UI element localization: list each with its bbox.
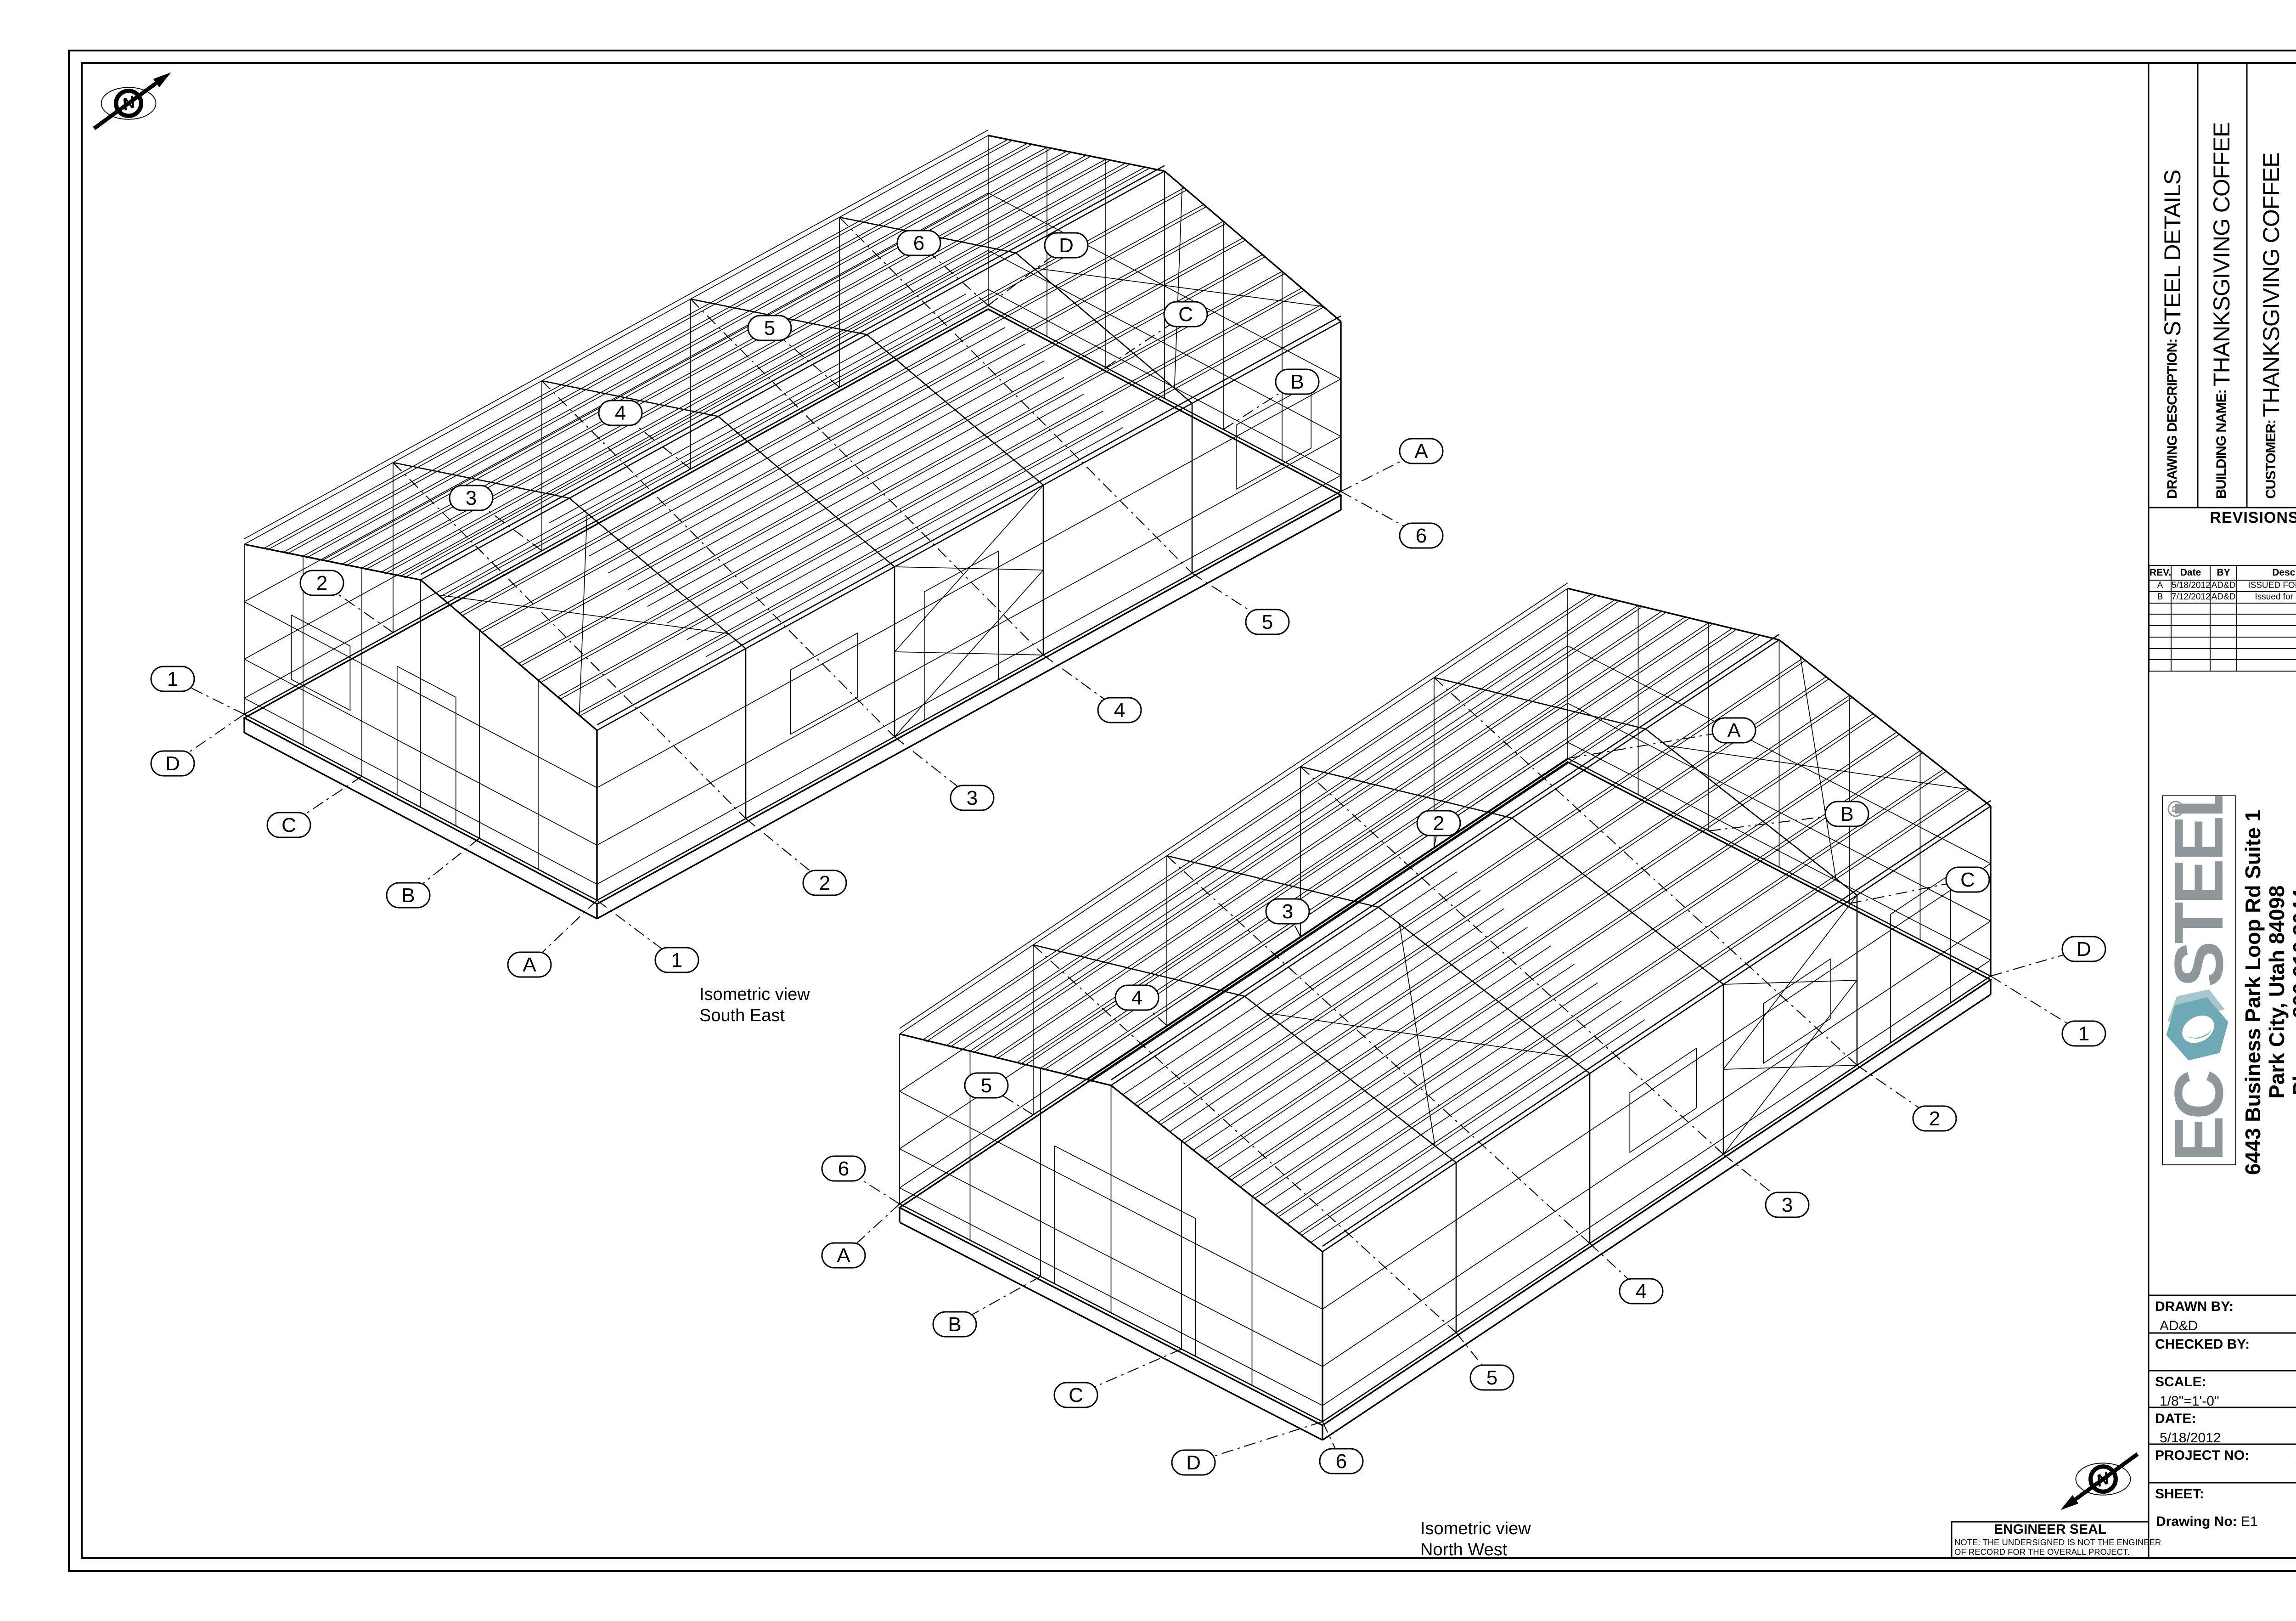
revisions-cell (2149, 660, 2171, 671)
info-value (2155, 1352, 2296, 1356)
grid-bubble-label: A (1727, 719, 1741, 742)
grid-bubble-label: 5 (1262, 611, 1273, 633)
revisions-cell (2237, 637, 2296, 649)
inner-border (82, 63, 2296, 1558)
revisions-cell (2237, 603, 2296, 615)
grid-bubble-label: 4 (615, 402, 626, 424)
grid-bubble-label: 2 (819, 872, 830, 894)
grid-bubble-label: B (1290, 371, 1304, 393)
grid-bubble-label: 2 (1433, 812, 1444, 835)
revisions-col-header: Date (2171, 565, 2210, 580)
field-label: BUILDING NAME: (2214, 390, 2229, 499)
drawing-no-label: Drawing No: (2156, 1514, 2237, 1529)
grid-bubble-label: 3 (1782, 1194, 1793, 1216)
engineer-seal-title: ENGINEER SEAL (1952, 1522, 2149, 1537)
address-line: 6443 Business Park Loop Rd Suite 1 (2241, 661, 2265, 1323)
info-value: AD&D (2155, 1315, 2296, 1334)
project-no-value: 1051-12 (2290, 1447, 2296, 1469)
grid-bubble-label: B (948, 1313, 961, 1336)
info-label: DATE: (2155, 1411, 2296, 1427)
info-value: 1/8"=1'-0" (2155, 1390, 2296, 1409)
title-field-0: DRAWING DESCRIPTION:STEEL DETAILS (2149, 64, 2198, 506)
field-label: CUSTOMER: (2263, 420, 2279, 499)
revisions-cell: 7/12/2012 (2171, 592, 2210, 603)
grid-bubble-label: 6 (838, 1158, 849, 1180)
view-title-south-east: Isometric view South East (699, 984, 810, 1026)
grid-bubble-label: A (1414, 440, 1428, 463)
north-arrow-icon: N (94, 72, 171, 128)
revisions-cell (2171, 660, 2210, 671)
revisions-cell (2149, 649, 2171, 660)
revisions-cell: AD&D (2210, 580, 2237, 592)
revisions-cell (2210, 637, 2237, 649)
revisions-cell (2149, 614, 2171, 626)
info-label: SCALE: (2155, 1374, 2296, 1390)
grid-bubble-label: 3 (466, 487, 477, 509)
building-north-west (900, 583, 1991, 1440)
revisions-col-header: REV. (2149, 565, 2171, 580)
revisions-cell: A (2149, 580, 2171, 592)
revisions-cell (2149, 637, 2171, 649)
revisions-cell (2171, 626, 2210, 637)
field-value: STEEL DETAILS (2160, 170, 2185, 339)
company-address: 6443 Business Park Loop Rd Suite 1 Park … (2241, 661, 2296, 1323)
revisions-cell (2210, 626, 2237, 637)
ecosteel-logo: EC STEEL R (2163, 796, 2235, 1164)
revisions-cell (2237, 626, 2296, 637)
address-line: Phone: 800.916.2044 (2289, 661, 2296, 1323)
grid-bubble-label: 3 (1282, 900, 1293, 923)
grid-bubble-label: 2 (316, 572, 327, 594)
grid-bubble-label: D (1186, 1452, 1201, 1474)
sheet-row: SHEET: Drawing No: E1 (2149, 1483, 2296, 1558)
svg-text:R: R (2170, 805, 2182, 813)
grid-bubble-label: D (1059, 234, 1074, 257)
logo-nut-icon (2163, 987, 2234, 1064)
grid-bubble-label: 1 (167, 668, 178, 690)
grid-bubble-label: A (837, 1244, 850, 1267)
revisions-title: REVISIONS (2149, 509, 2296, 527)
revisions-cell: B (2149, 592, 2171, 603)
info-row-1: CHECKED BY: (2149, 1333, 2296, 1371)
grid-bubble-label: D (2077, 938, 2091, 960)
view-title-north-west: Isometric view North West (1420, 1518, 1531, 1560)
revisions-cell: Issued for construction (2237, 592, 2296, 603)
grid-bubble-label: 5 (1486, 1367, 1497, 1389)
grid-bubble-label: 2 (1929, 1107, 1940, 1130)
revisions-col-header: Description (2237, 565, 2296, 580)
grid-bubble-label: B (401, 884, 415, 907)
project-no-label: PROJECT NO: (2155, 1448, 2296, 1463)
building-south-east (244, 130, 1341, 919)
outer-border (69, 51, 2296, 1571)
grid-bubble-label: B (1840, 803, 1853, 825)
revisions-table: REV.DateBYDescriptionA5/18/2012AD&DISSUE… (2149, 565, 2296, 672)
ecosteel-logo-icon: EC STEEL R (2163, 796, 2235, 1164)
grid-bubble-label: 4 (1114, 699, 1125, 722)
grid-bubble-label: C (1960, 869, 1975, 891)
grid-bubble-label: C (281, 814, 296, 836)
drawing-no-value: E1 (2241, 1514, 2258, 1529)
engineer-seal-note: NOTE: THE UNDERSIGNED IS NOT THE ENGINEE… (1952, 1537, 2149, 1547)
revisions-cell (2210, 603, 2237, 615)
engineer-seal-note: OF RECORD FOR THE OVERALL PROJECT. (1952, 1547, 2149, 1557)
revisions-cell: ISSUED FOR APPROVAL (2237, 580, 2296, 592)
engineer-seal-box: ENGINEER SEAL NOTE: THE UNDERSIGNED IS N… (1952, 1522, 2149, 1558)
drawing-canvas: 1DCBA123456DCBA654326ABCD654321DCBA5432N… (0, 0, 2296, 1621)
grid-bubble-label: 6 (1336, 1450, 1347, 1473)
info-row-0: DRAWN BY:AD&D (2149, 1295, 2296, 1333)
field-value: THANKSGIVING COFFEE (2258, 152, 2284, 420)
revisions-cell (2210, 614, 2237, 626)
address-line: Park City, Utah 84098 (2265, 661, 2289, 1323)
title-field-2: CUSTOMER:THANKSGIVING COFFEE (2247, 64, 2296, 506)
grid-bubble-label: A (523, 954, 536, 976)
project-no-row: PROJECT NO: 1051-12 (2149, 1444, 2296, 1483)
info-row-3: DATE:5/18/2012 (2149, 1407, 2296, 1444)
revisions-cell (2210, 660, 2237, 671)
grid-bubble-label: 5 (764, 317, 775, 339)
revisions-cell (2171, 649, 2210, 660)
drawing-sheet: 1DCBA123456DCBA654326ABCD654321DCBA5432N… (0, 0, 2296, 1621)
grid-bubble-label: 6 (913, 232, 924, 254)
grid-bubble-label: 3 (967, 787, 978, 809)
revisions-cell (2171, 614, 2210, 626)
logo-text-ec: EC (2163, 1071, 2235, 1162)
revisions-cell (2171, 637, 2210, 649)
grid-bubble-label: 6 (1416, 525, 1427, 547)
revisions-cell (2149, 626, 2171, 637)
revisions-cell (2237, 614, 2296, 626)
revisions-cell (2237, 649, 2296, 660)
grid-bubble-label: D (165, 752, 180, 775)
title-field-1: BUILDING NAME:THANKSGIVING COFFEE (2198, 64, 2247, 506)
revisions-cell: AD&D (2210, 592, 2237, 603)
revisions-cell (2210, 649, 2237, 660)
sheet-label: SHEET: (2155, 1486, 2296, 1502)
info-label: DRAWN BY: (2155, 1299, 2296, 1315)
info-row-2: SCALE:1/8"=1'-0" (2149, 1371, 2296, 1407)
grid-bubble-label: C (1069, 1384, 1083, 1406)
north-arrow-icon: N (2060, 1454, 2138, 1510)
field-value: THANKSGIVING COFFEE (2209, 123, 2234, 390)
revisions-cell (2171, 603, 2210, 615)
revisions-cell: 5/18/2012 (2171, 580, 2210, 592)
grid-bubble-label: 1 (671, 949, 682, 971)
drawing-no: Drawing No: E1 (2155, 1502, 2296, 1530)
grid-bubble-label: 4 (1131, 987, 1142, 1009)
info-label: CHECKED BY: (2155, 1337, 2296, 1352)
grid-bubble-label: 1 (2078, 1022, 2089, 1045)
grid-bubble-label: C (1178, 303, 1193, 326)
logo-text-steel: STEEL (2163, 796, 2235, 987)
revisions-cell (2149, 603, 2171, 615)
grid-bubble-label: 5 (981, 1074, 992, 1097)
info-value: 5/18/2012 (2155, 1427, 2296, 1446)
field-label: DRAWING DESCRIPTION: (2165, 339, 2180, 499)
grid-bubble-label: 4 (1636, 1280, 1647, 1303)
revisions-col-header: BY (2210, 565, 2237, 580)
